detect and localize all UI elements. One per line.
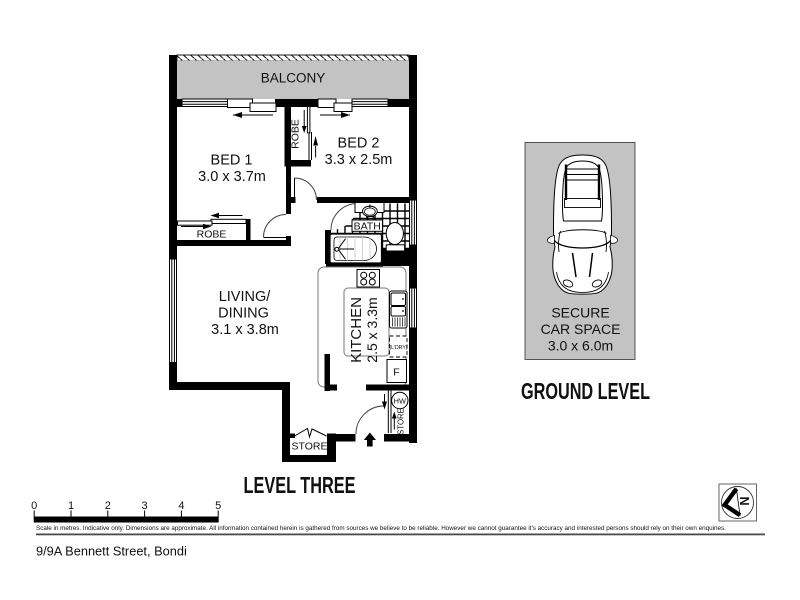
svg-text:N: N	[737, 496, 751, 505]
svg-text:LEVEL THREE: LEVEL THREE	[244, 472, 356, 498]
svg-text:HW: HW	[394, 396, 406, 405]
svg-text:4: 4	[178, 500, 184, 512]
svg-text:ROBE: ROBE	[197, 229, 227, 241]
svg-text:ROBE: ROBE	[289, 119, 301, 149]
svg-text:BED 2: BED 2	[338, 136, 380, 152]
svg-text:CAR SPACE: CAR SPACE	[541, 321, 621, 337]
svg-text:2.5 x 3.3m: 2.5 x 3.3m	[364, 297, 380, 362]
svg-text:BALCONY: BALCONY	[261, 71, 326, 86]
svg-text:3.1 x 3.8m: 3.1 x 3.8m	[211, 322, 279, 338]
svg-text:|L'DRY|: |L'DRY|	[390, 345, 407, 351]
svg-text:3.3 x 2.5m: 3.3 x 2.5m	[325, 152, 393, 168]
svg-text:LIVING/: LIVING/	[219, 289, 272, 305]
svg-text:SECURE: SECURE	[551, 305, 609, 321]
svg-text:STORE: STORE	[396, 408, 405, 435]
svg-text:BATH: BATH	[354, 221, 381, 233]
svg-text:3: 3	[142, 500, 148, 512]
svg-text:BED 1: BED 1	[211, 153, 253, 169]
svg-text:STORE: STORE	[292, 441, 328, 453]
svg-text:5: 5	[215, 500, 221, 512]
svg-text:3.0 x 6.0m: 3.0 x 6.0m	[548, 338, 613, 354]
svg-text:3.0 x 3.7m: 3.0 x 3.7m	[198, 169, 266, 185]
svg-text:1: 1	[68, 500, 74, 512]
svg-text:KITCHEN: KITCHEN	[348, 297, 365, 363]
svg-text:Scale in metres. Indicative on: Scale in metres. Indicative only. Dimens…	[36, 525, 726, 532]
svg-text:GROUND LEVEL: GROUND LEVEL	[521, 378, 650, 404]
svg-text:9/9A Bennett Street, Bondi: 9/9A Bennett Street, Bondi	[36, 544, 187, 559]
svg-text:0: 0	[31, 500, 37, 512]
svg-text:F: F	[393, 367, 399, 379]
svg-text:2: 2	[105, 500, 111, 512]
svg-text:DINING: DINING	[218, 306, 269, 322]
